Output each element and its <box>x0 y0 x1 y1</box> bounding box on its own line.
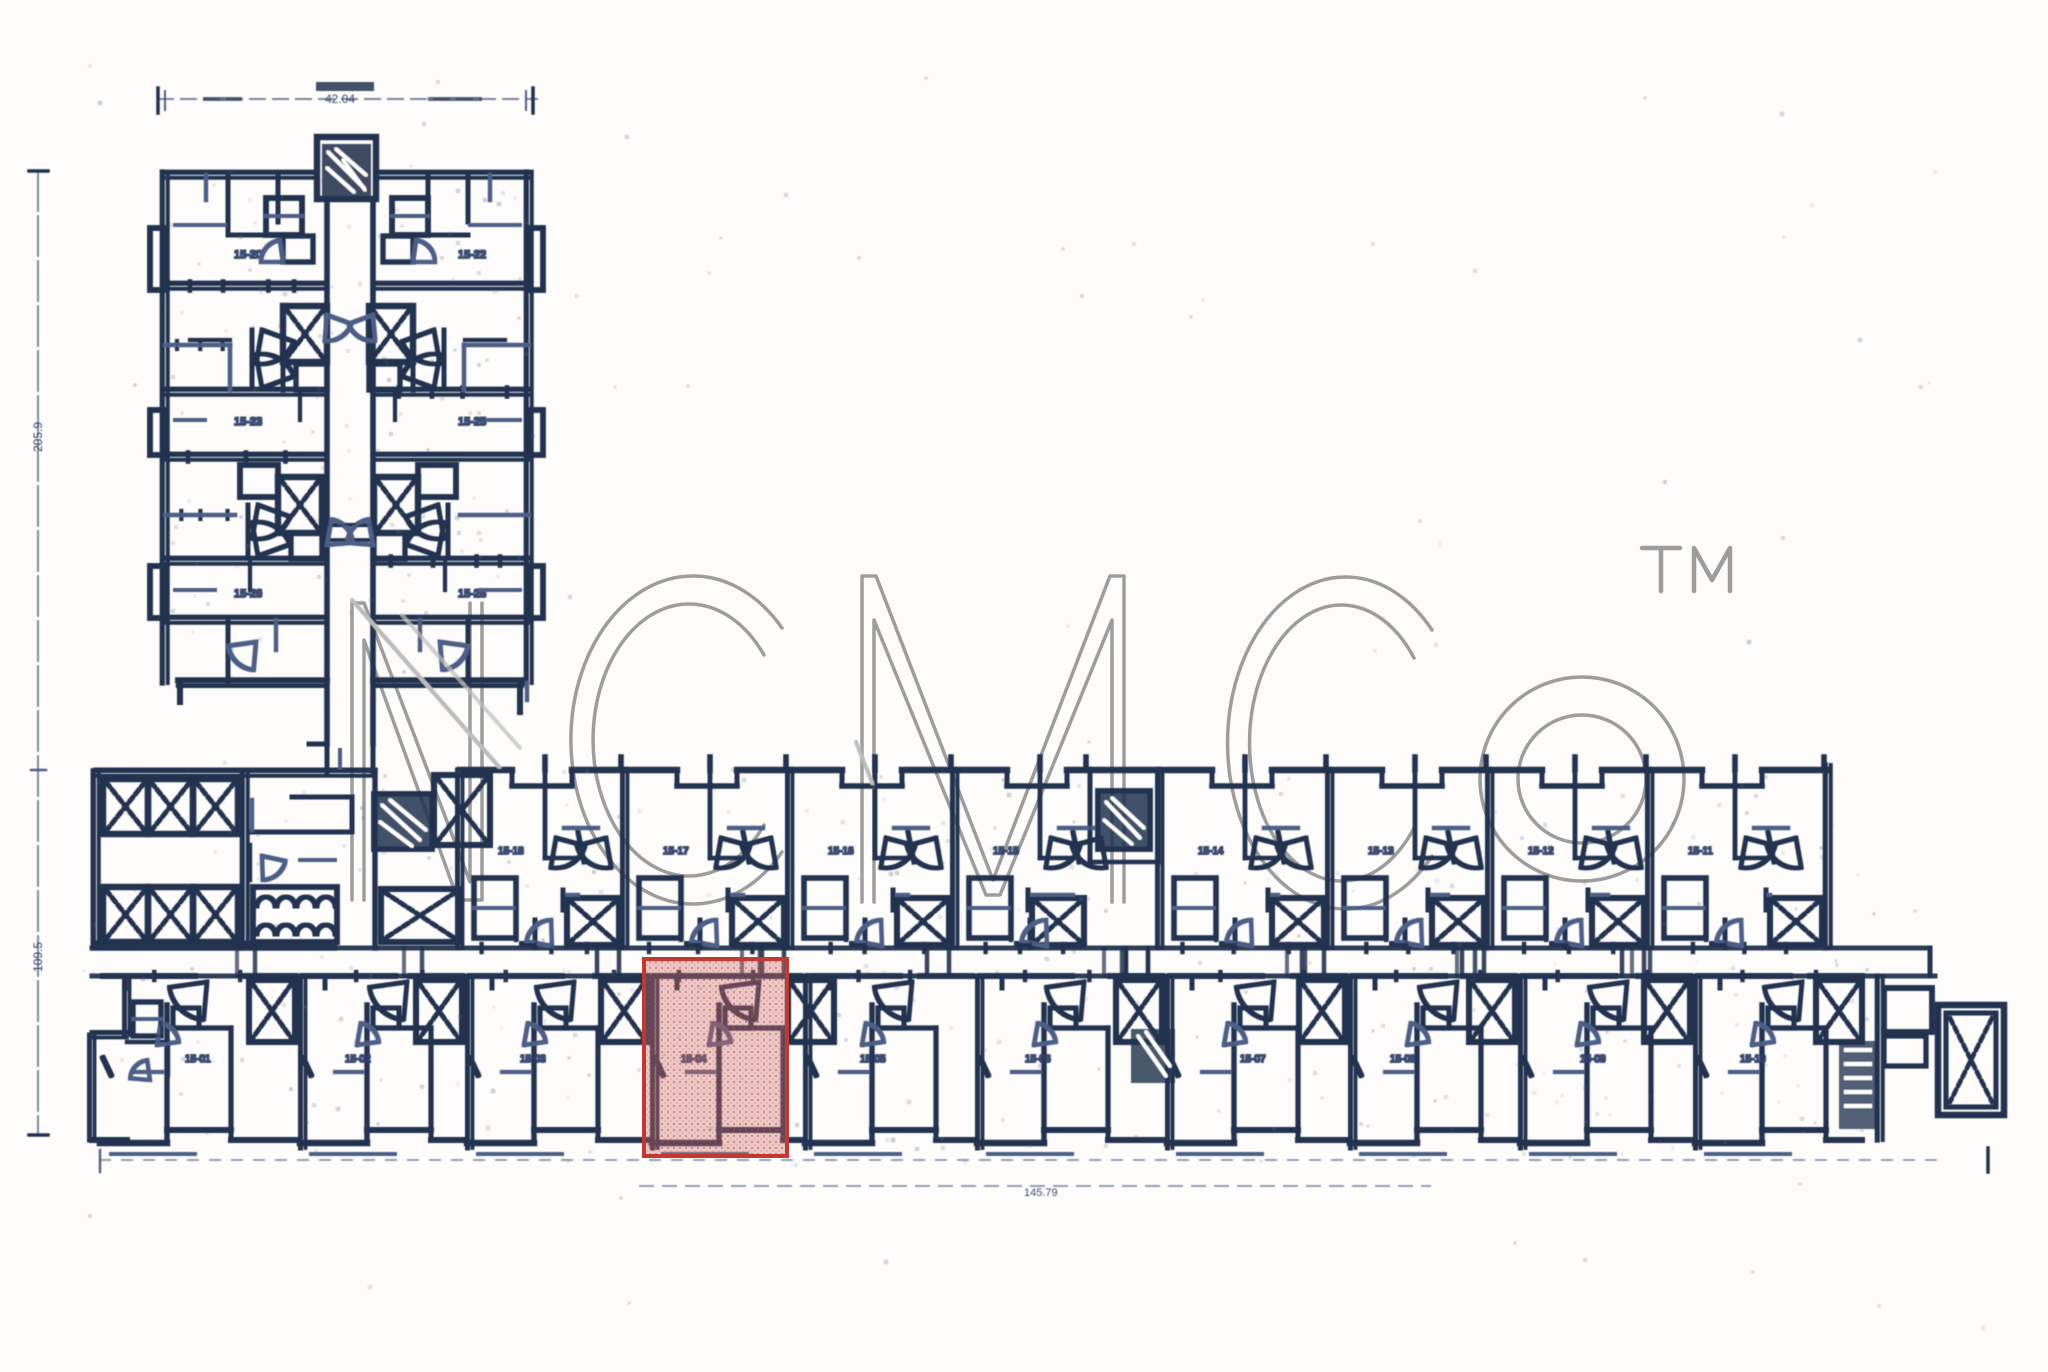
svg-text:15-20: 15-20 <box>234 249 262 261</box>
svg-text:15-07: 15-07 <box>1240 1054 1266 1065</box>
svg-text:15-05: 15-05 <box>860 1054 886 1065</box>
svg-text:42.04: 42.04 <box>325 92 355 106</box>
svg-text:15-10: 15-10 <box>1740 1054 1766 1065</box>
svg-text:15-01: 15-01 <box>185 1054 211 1065</box>
svg-text:15-16: 15-16 <box>828 846 854 857</box>
svg-text:145.79: 145.79 <box>1024 1187 1058 1199</box>
svg-text:15-11: 15-11 <box>1688 846 1713 857</box>
svg-text:15-14: 15-14 <box>1198 846 1224 857</box>
svg-text:15-13: 15-13 <box>1368 846 1394 857</box>
svg-text:15-18: 15-18 <box>498 846 524 857</box>
svg-text:15-15: 15-15 <box>993 846 1019 857</box>
svg-text:15-02: 15-02 <box>345 1054 371 1065</box>
svg-text:15-06: 15-06 <box>1025 1054 1051 1065</box>
svg-text:15-26: 15-26 <box>234 588 262 600</box>
svg-text:15-23: 15-23 <box>234 416 262 428</box>
svg-text:15-08: 15-08 <box>1390 1054 1416 1065</box>
svg-text:205.9: 205.9 <box>31 422 45 452</box>
svg-text:15-17: 15-17 <box>663 846 689 857</box>
svg-text:15-09: 15-09 <box>1580 1054 1606 1065</box>
svg-text:15-03: 15-03 <box>520 1054 546 1065</box>
svg-text:15-25: 15-25 <box>458 416 486 428</box>
svg-text:15-22: 15-22 <box>458 249 486 261</box>
svg-text:109.5: 109.5 <box>31 942 45 972</box>
